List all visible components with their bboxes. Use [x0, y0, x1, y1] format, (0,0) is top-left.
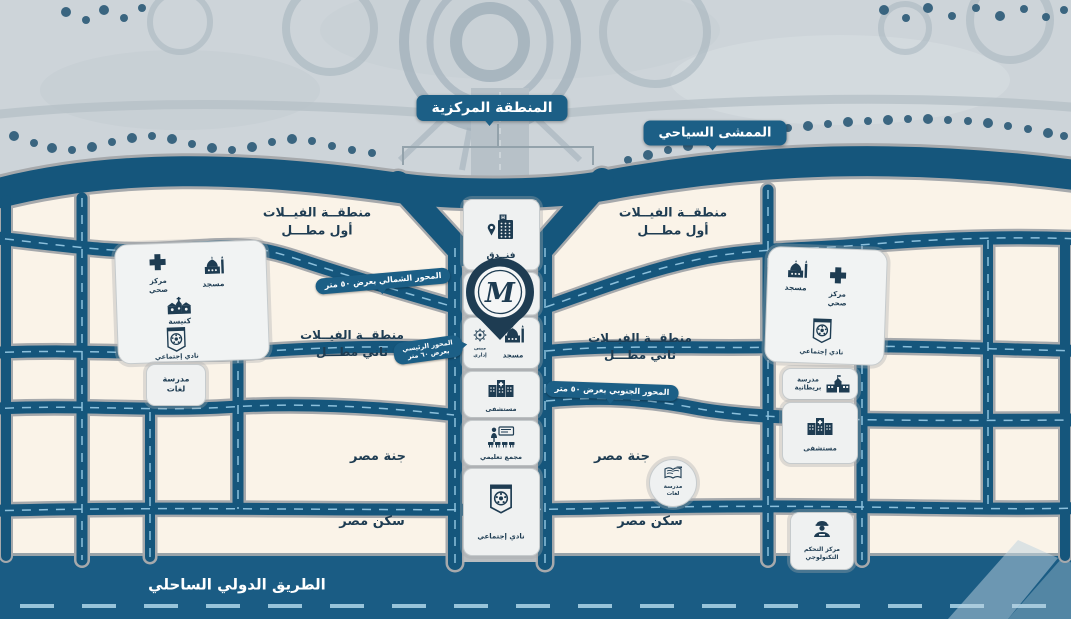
british-school-label: مدرسة بريطانية [795, 376, 822, 393]
hospital-label: مستشفى [803, 444, 837, 453]
label-line: نادي إجتماعي [799, 347, 843, 357]
label-line: كنيسة [168, 316, 191, 327]
hotel-icon: H [486, 214, 516, 240]
british-school-card: مدرسة بريطانية [782, 368, 858, 400]
social-club-card-center: نادي إجتماعي [463, 468, 540, 556]
label-line: جنة مصر [350, 448, 406, 466]
club-pennant-icon [489, 484, 513, 515]
hospital-label: مستشفى [485, 405, 516, 413]
label-line: نادي إجتماعي [155, 352, 199, 362]
label-line: منطقــة الفيــلات [619, 204, 727, 222]
janna-misr-right-label: جنة مصر [594, 448, 650, 466]
label-line: منطقــة الفيــلات [300, 327, 404, 344]
book-pencil-icon [664, 467, 682, 480]
label-line: مستشفى [485, 405, 516, 413]
british-school-icon [825, 375, 851, 393]
label-line: مدرسة [664, 484, 683, 491]
mosque-icon [783, 259, 810, 280]
label-line: بريطانية [795, 384, 822, 392]
hospital-card-center: مستشفى [463, 371, 540, 418]
church-icon [166, 296, 193, 315]
mosque-label: مسجد [784, 283, 806, 294]
label-line: لغات [664, 491, 683, 498]
villas-first-left-label: منطقــة الفيــلات أول مطـــل [263, 204, 371, 239]
social-club-label: نادي إجتماعي [799, 347, 843, 357]
villas-second-left-label: منطقــة الفيــلات ثاني مطـــل [300, 327, 404, 361]
janna-misr-left-label: جنة مصر [350, 448, 406, 466]
map-stage: مركز صحي مسجد كنيسة نادي إجتماعي مسجد [0, 0, 1071, 619]
label-line: مدرسة [795, 376, 822, 384]
label-line: التكنولوجي [804, 554, 840, 562]
edu-complex-label: مجمع تعليمي [480, 453, 522, 461]
hospital-icon [806, 417, 834, 437]
label-line: لغات [163, 385, 190, 395]
label-line: سكن مصر [339, 513, 405, 531]
language-school-label: مدرسة لغات [163, 375, 190, 396]
left-amenities-block: مركز صحي مسجد كنيسة نادي إجتماعي [114, 239, 270, 364]
label-line: مدرسة [163, 375, 190, 385]
mosque-label: مسجد [202, 279, 224, 290]
label-line: صحي [149, 286, 168, 296]
label-line: مبنى [473, 346, 486, 353]
label-line: جنة مصر [594, 448, 650, 466]
sakan-misr-right-label: سكن مصر [617, 513, 683, 531]
label-line: مجمع تعليمي [480, 453, 522, 461]
label-line: إداري [473, 352, 486, 359]
label-line: ثاني مطـــل [588, 347, 692, 364]
coastal-road-label: الطريق الدولي الساحلي [148, 575, 326, 596]
edu-complex-card: مجمع تعليمي [463, 420, 540, 466]
label-line: صحي [827, 299, 846, 309]
label-line: ثاني مطـــل [300, 344, 404, 361]
logo-monogram: M [484, 278, 516, 309]
logo-pin-icon: M [457, 256, 543, 342]
language-school-label: مدرسة لغات [664, 484, 683, 498]
officer-icon [811, 520, 833, 538]
language-school-card-left: مدرسة لغات [146, 364, 206, 406]
right-amenities-block: مسجد مركز صحي نادي إجتماعي [764, 246, 888, 366]
label-line: منطقــة الفيــلات [263, 204, 371, 222]
control-center-label: مركز التحكم التكنولوجي [804, 546, 840, 562]
tourist-walkway-badge: الممشى السياحي [644, 121, 787, 146]
label-line: مستشفى [803, 444, 837, 453]
label-line: مركز التحكم [804, 546, 840, 554]
hospital-icon [487, 379, 515, 399]
svg-text:H: H [501, 215, 505, 221]
label-line: سكن مصر [617, 513, 683, 531]
church-label: كنيسة [168, 316, 191, 327]
label-line: منطقــة الفيــلات [588, 330, 692, 347]
label-line: أول مطـــل [619, 221, 727, 239]
health-center-label: مركز صحي [149, 277, 169, 296]
health-cross-icon [829, 266, 848, 285]
central-zone-badge: المنطقة المركزية [417, 95, 568, 121]
health-cross-icon [148, 253, 167, 272]
social-club-label: نادي إجتماعي [155, 352, 199, 362]
label-line: أول مطـــل [263, 221, 371, 239]
health-center-label: مركز صحي [827, 290, 847, 309]
club-pennant-icon [812, 318, 833, 345]
label-line: نادي إجتماعي [477, 532, 524, 541]
control-center-card: مركز التحكم التكنولوجي [790, 512, 854, 570]
mosque-label: مسجد [503, 351, 524, 360]
villas-first-right-label: منطقــة الفيــلات أول مطـــل [619, 204, 727, 239]
club-pennant-icon [166, 326, 187, 353]
hospital-card-right: مستشفى [782, 402, 858, 464]
social-club-label: نادي إجتماعي [477, 532, 524, 541]
label-line: مسجد [503, 351, 524, 360]
villas-second-right-label: منطقــة الفيــلات ثاني مطـــل [588, 330, 692, 364]
mosque-icon [199, 256, 226, 277]
language-school-badge-right: مدرسة لغات [649, 459, 697, 507]
label-line: مسجد [784, 283, 806, 294]
admin-building-label: مبنى إداري [473, 346, 486, 359]
label-line: مسجد [202, 279, 224, 290]
sakan-misr-left-label: سكن مصر [339, 513, 405, 531]
edu-complex-icon [487, 426, 515, 448]
